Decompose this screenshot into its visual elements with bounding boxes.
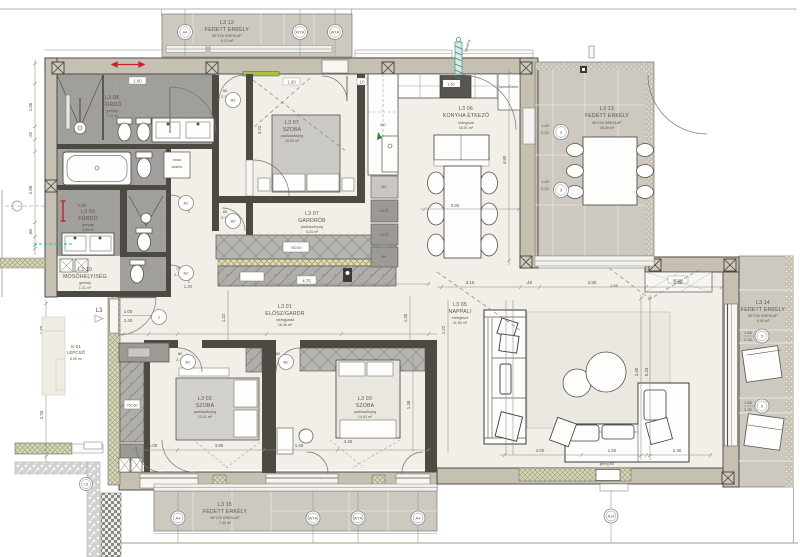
svg-text:A14: A14 [607,514,615,519]
svg-text:A4: A4 [176,516,182,521]
svg-text:ELŐSZ/GARDR: ELŐSZ/GARDR [265,310,304,317]
svg-text:1.22: 1.22 [441,325,446,334]
svg-text:3.40: 3.40 [634,367,639,376]
svg-text:MG: MG [381,185,387,189]
svg-text:7.19 m²: 7.19 m² [106,114,119,118]
svg-text:2.93: 2.93 [39,410,44,419]
svg-text:L3 01: L3 01 [278,304,292,310]
svg-text:1.22: 1.22 [221,313,226,322]
svg-text:1.05: 1.05 [149,443,158,448]
svg-text:41.50 m²: 41.50 m² [453,321,468,325]
svg-text:MH: MH [382,255,388,259]
svg-text:B2: B2 [186,360,192,365]
svg-text:Főzőlap: Főzőlap [449,91,462,95]
svg-text:1.38: 1.38 [406,400,411,409]
svg-text:60*120 GRESLAP: 60*120 GRESLAP [210,516,240,520]
svg-text:60*120 GRESLAP: 60*120 GRESLAP [212,34,242,38]
svg-text:.45: .45 [526,280,533,285]
svg-text:2.58: 2.58 [28,185,33,194]
svg-text:peng 60: peng 60 [600,461,615,466]
svg-text:2.30: 2.30 [744,407,753,412]
svg-text:padlószőnyeg: padlószőnyeg [281,134,303,138]
svg-text:80: 80 [223,88,228,93]
svg-text:melegburk: melegburk [452,316,469,320]
svg-text:1.45: 1.45 [295,443,304,448]
svg-text:NAPPALI: NAPPALI [449,309,472,315]
svg-text:2.80: 2.80 [588,280,597,285]
svg-text:2.40: 2.40 [124,318,133,323]
svg-text:1.85: 1.85 [674,280,683,285]
svg-text:B0: B0 [231,219,237,224]
svg-text:K-01: K-01 [71,344,81,349]
svg-text:1.50: 1.50 [608,448,617,453]
svg-text:80: 80 [276,351,281,356]
svg-text:16.01 m²: 16.01 m² [459,126,474,130]
svg-text:W7A: W7A [331,30,340,35]
svg-text:1.80: 1.80 [28,102,33,111]
svg-text:padlószőnyeg: padlószőnyeg [354,410,376,414]
svg-text:4.80: 4.80 [502,155,507,164]
svg-text:padlószőnyeg: padlószőnyeg [194,410,216,414]
svg-text:FEDETT ERKÉLY: FEDETT ERKÉLY [203,508,248,515]
svg-text:60*120 GRESLAP: 60*120 GRESLAP [592,121,622,125]
svg-text:L3 10: L3 10 [78,267,92,273]
svg-text:2.30: 2.30 [673,448,682,453]
svg-text:W7A: W7A [354,516,363,521]
svg-text:3.80: 3.80 [451,203,460,208]
svg-text:FEDETT ERKÉLY: FEDETT ERKÉLY [205,26,250,33]
svg-text:5.24 m²: 5.24 m² [306,230,319,234]
svg-text:SÜTŐ: SÜTŐ [380,232,389,237]
svg-text:2.20: 2.20 [541,186,550,191]
svg-text:greslap: greslap [79,281,91,285]
svg-text:W7A: W7A [296,30,305,35]
svg-text:.20: .20 [28,131,33,138]
svg-text:4.25: 4.25 [344,439,353,444]
svg-text:B2: B2 [184,201,190,206]
svg-text:1.40: 1.40 [541,179,550,184]
svg-text:greslap: greslap [106,109,118,113]
svg-text:L3 02: L3 02 [198,396,212,402]
svg-text:L3 07: L3 07 [285,120,299,126]
svg-text:16.46 m²: 16.46 m² [278,323,293,327]
svg-text:FÜRDŐ: FÜRDŐ [102,101,121,108]
svg-text:80: 80 [178,351,183,356]
svg-text:750.60: 750.60 [291,246,302,250]
svg-text:padlószőnyeg: padlószőnyeg [301,225,323,229]
svg-text:1.85: 1.85 [744,330,753,335]
svg-text:L3 06: L3 06 [459,106,473,112]
svg-text:LÉPCSŐ: LÉPCSŐ [67,349,86,355]
svg-text:1.85: 1.85 [610,283,619,288]
svg-text:L3 14: L3 14 [756,300,770,306]
svg-text:.80: .80 [28,228,33,235]
svg-text:FEDETT ERKÉLY: FEDETT ERKÉLY [585,112,630,119]
svg-text:1.50: 1.50 [448,83,455,87]
svg-text:4.75: 4.75 [302,279,311,284]
svg-text:B2: B2 [284,360,290,365]
svg-text:A4: A4 [183,30,189,35]
svg-text:B0: B0 [231,98,237,103]
svg-text:1.85: 1.85 [744,400,753,405]
svg-text:A4: A4 [416,516,422,521]
svg-text:FEDETT ERKÉLY: FEDETT ERKÉLY [741,306,786,313]
svg-text:MG: MG [380,123,386,127]
svg-text:B2: B2 [184,271,190,276]
svg-text:3.22: 3.22 [257,125,262,134]
svg-text:melegpadló: melegpadló [276,318,295,322]
svg-text:1.00: 1.00 [124,309,133,314]
svg-text:4.00: 4.00 [536,448,545,453]
svg-text:KONYHA ÉTKEZŐ: KONYHA ÉTKEZŐ [443,112,489,119]
svg-text:1.21 m²: 1.21 m² [79,286,92,290]
svg-text:HŰTŐ: HŰTŐ [379,208,389,213]
svg-text:szárító: szárító [172,165,183,169]
svg-text:7.40 m²: 7.40 m² [219,521,232,525]
svg-text:L3 03: L3 03 [358,396,372,402]
svg-text:5.10 m²: 5.10 m² [221,39,234,43]
svg-text:SZOBA: SZOBA [356,403,375,409]
svg-text:L3 13: L3 13 [600,106,614,112]
svg-text:L3 07: L3 07 [305,211,319,217]
svg-text:SZOBA: SZOBA [283,127,302,133]
svg-text:GARDRÓB: GARDRÓB [298,217,326,224]
svg-text:mosó: mosó [173,158,182,162]
svg-text:35.49 m²: 35.49 m² [600,126,615,130]
svg-text:L3 15: L3 15 [218,502,232,508]
svg-text:2.30: 2.30 [744,337,753,342]
svg-text:2.20: 2.20 [541,130,550,135]
svg-text:8.05 m²: 8.05 m² [70,357,83,361]
svg-text:3.15: 3.15 [466,280,475,285]
svg-text:3.80: 3.80 [215,443,224,448]
svg-text:750.60: 750.60 [127,404,138,408]
svg-text:60*100 GRESLAP: 60*100 GRESLAP [748,314,778,318]
svg-text:L5: L5 [84,482,89,487]
svg-text:8.90 m²: 8.90 m² [757,319,770,323]
svg-text:80: 80 [223,209,228,214]
svg-text:10: 10 [360,80,365,85]
svg-text:5.33: 5.33 [644,367,649,376]
svg-text:1.20: 1.20 [184,284,193,289]
svg-text:12.01 m²: 12.01 m² [198,415,213,419]
svg-text:1.90: 1.90 [287,80,296,85]
svg-text:14.63 m²: 14.63 m² [358,415,373,419]
svg-text:L3 09: L3 09 [81,209,95,215]
svg-text:L3: L3 [96,308,103,314]
svg-text:1.40: 1.40 [541,123,550,128]
svg-text:1.60: 1.60 [78,203,87,208]
svg-text:MOSÓHELYISÉG: MOSÓHELYISÉG [63,273,107,280]
svg-text:greslap: greslap [82,223,94,227]
svg-text:1.90: 1.90 [133,79,142,84]
svg-text:hidegburk: hidegburk [458,121,474,125]
svg-text:L3 12: L3 12 [220,20,234,26]
svg-text:L3 05: L3 05 [453,302,467,308]
svg-text:W7A: W7A [309,516,318,521]
svg-text:1.35: 1.35 [403,313,408,322]
svg-text:L3 08: L3 08 [105,95,119,101]
svg-text:FÜRDŐ: FÜRDŐ [78,215,97,222]
svg-text:16.02 m²: 16.02 m² [285,139,300,143]
svg-text:5.95 m²: 5.95 m² [82,228,95,232]
svg-text:SZOBA: SZOBA [196,403,215,409]
